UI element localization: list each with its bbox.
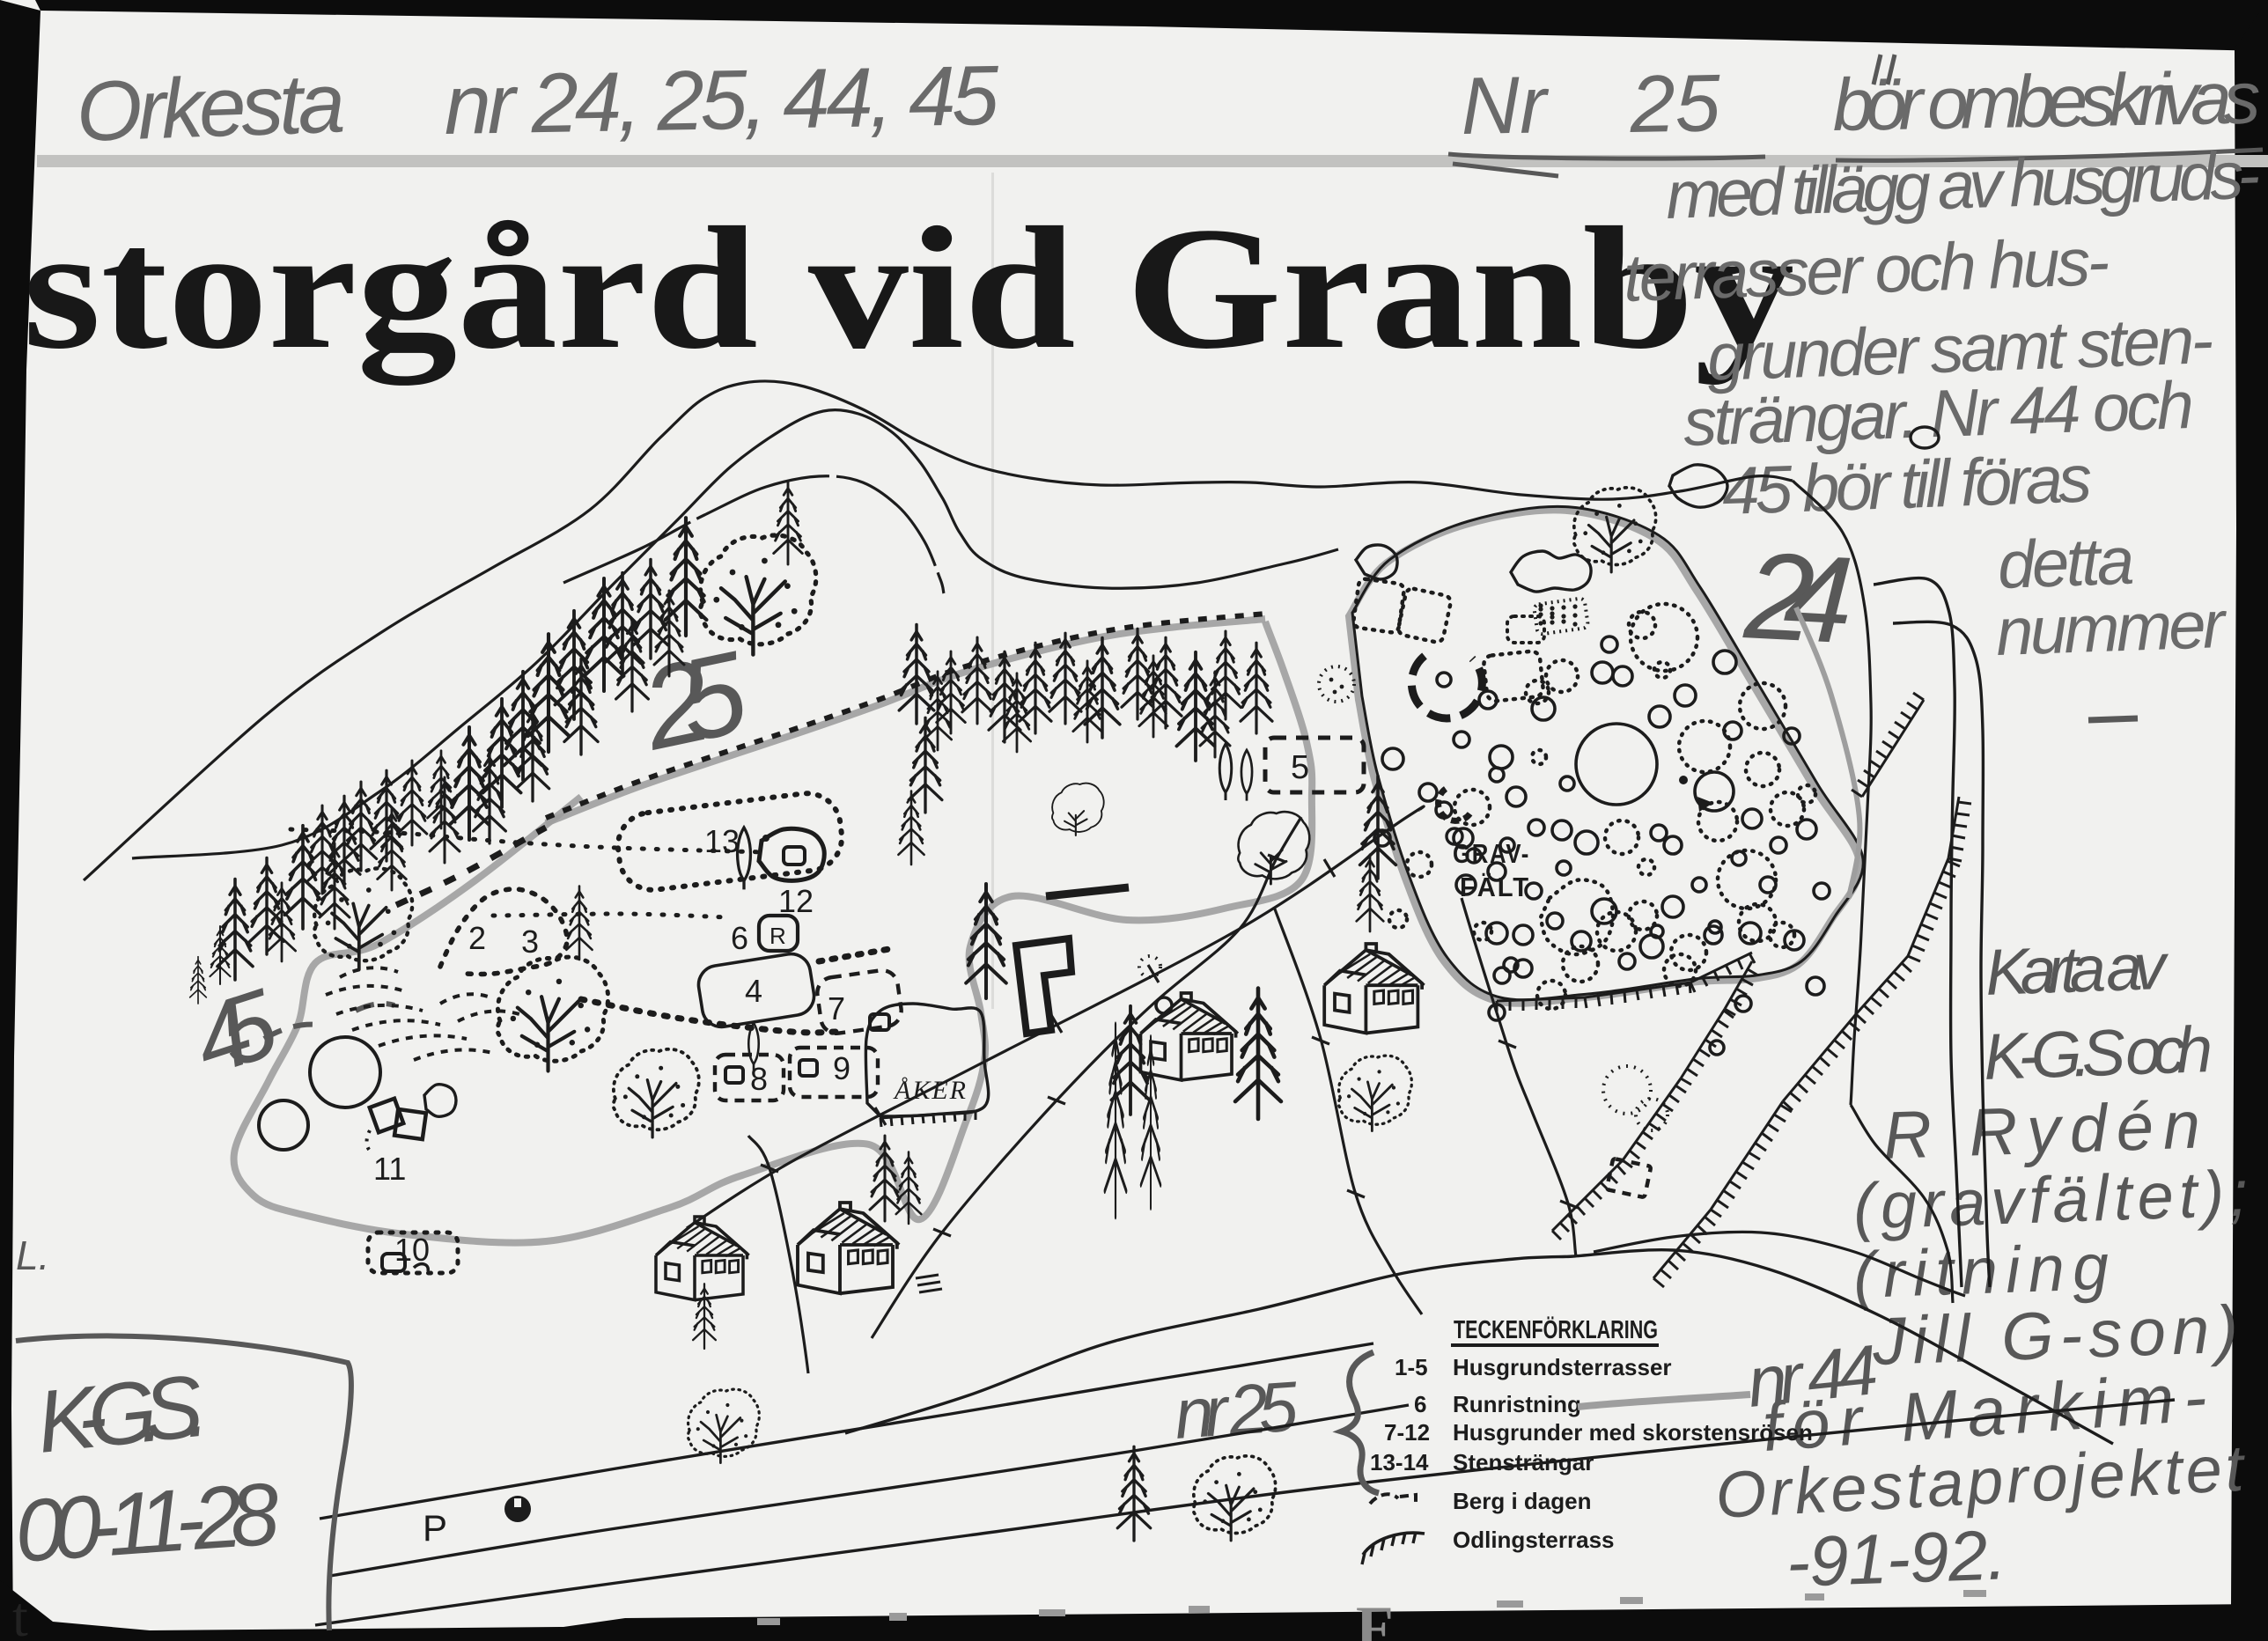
svg-text:00-11-28: 00-11-28 [12, 1464, 283, 1581]
svg-text:10: 10 [394, 1232, 430, 1268]
svg-text:storgård vid Granby: storgård vid Granby [23, 192, 1794, 386]
svg-text:25: 25 [1629, 58, 1722, 150]
svg-text:7-12: 7-12 [1384, 1419, 1430, 1446]
svg-text:Odlingsterrass: Odlingsterrass [1453, 1527, 1615, 1553]
svg-text:45 bör till föras: 45 bör till föras [1721, 441, 2094, 529]
svg-text:TECKENFÖRKLARING: TECKENFÖRKLARING [1454, 1315, 1658, 1344]
svg-text:Karta av: Karta av [1984, 930, 2171, 1009]
svg-text:24: 24 [1741, 526, 1856, 669]
svg-text:t: t [12, 1586, 28, 1641]
svg-text:13: 13 [704, 823, 740, 859]
svg-text:12: 12 [778, 883, 814, 919]
svg-text:Runristning: Runristning [1453, 1391, 1581, 1417]
svg-text:6: 6 [1414, 1391, 1426, 1417]
svg-text:7: 7 [828, 990, 845, 1027]
svg-text:Nr: Nr [1461, 60, 1550, 151]
svg-text:K-G.S och: K-G.S och [1983, 1012, 2214, 1093]
svg-text:P: P [423, 1507, 447, 1549]
svg-text:K-G.S.: K-G.S. [33, 1356, 214, 1472]
svg-text:5: 5 [1291, 749, 1309, 786]
svg-text:2: 2 [468, 920, 486, 956]
svg-text:Orkesta: Orkesta [75, 55, 347, 159]
svg-text:-91-92.: -91-92. [1785, 1515, 2007, 1601]
svg-text:13-14: 13-14 [1370, 1449, 1429, 1475]
svg-text:R: R [769, 923, 786, 949]
svg-text:Stensträngar: Stensträngar [1453, 1449, 1594, 1475]
svg-text:bör ombeskrivas: bör ombeskrivas [1832, 56, 2262, 146]
svg-text:6: 6 [731, 920, 748, 956]
svg-text:nr 24, 25, 44, 45: nr 24, 25, 44, 45 [443, 48, 999, 152]
svg-text:9: 9 [833, 1050, 850, 1086]
svg-text:F: F [1356, 1594, 1394, 1641]
svg-text:Husgrundsterrasser: Husgrundsterrasser [1453, 1354, 1672, 1380]
svg-text:11: 11 [373, 1151, 406, 1187]
svg-text:1-5: 1-5 [1395, 1354, 1428, 1380]
svg-text:Berg i dagen: Berg i dagen [1453, 1488, 1591, 1514]
svg-text:nummer: nummer [1995, 587, 2228, 670]
svg-text:Husgrunder med skorstensrösen: Husgrunder med skorstensrösen [1453, 1419, 1813, 1446]
svg-text:3: 3 [521, 924, 539, 960]
svg-text:L.: L. [16, 1233, 49, 1278]
svg-text:4: 4 [745, 973, 762, 1009]
